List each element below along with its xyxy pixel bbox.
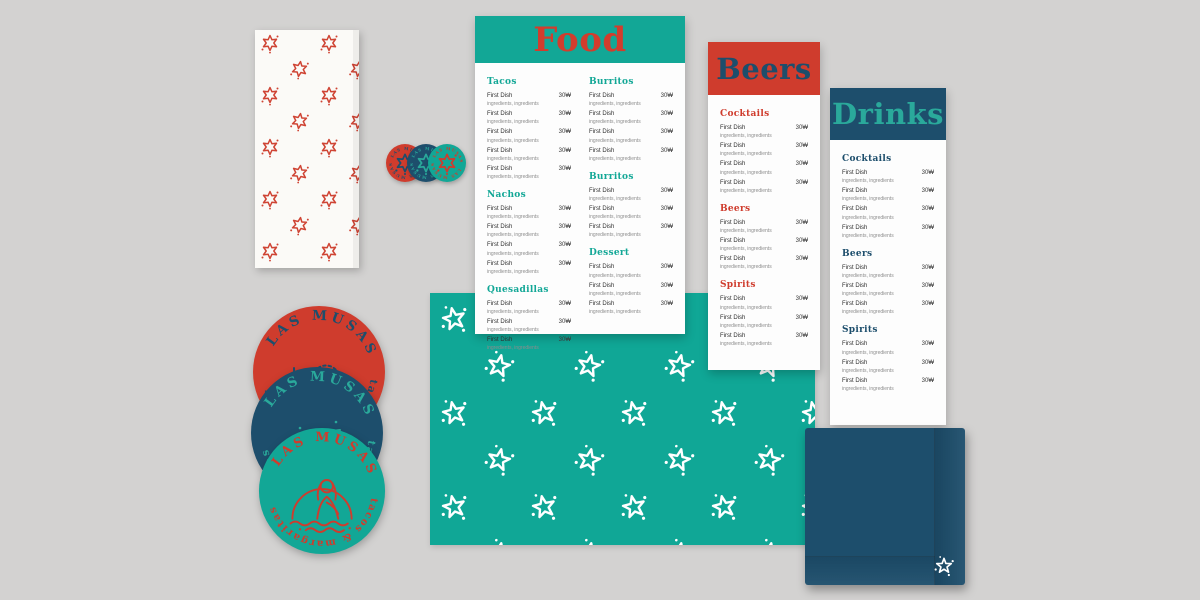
item-price: 30₩ [661, 206, 673, 213]
item-name: First Dish [487, 337, 512, 344]
item-name: First Dish [589, 93, 614, 100]
menu-item: First Dish30₩ingredients, ingredients [842, 170, 934, 184]
item-description: ingredients, ingredients [487, 269, 571, 275]
menu-section: BurritosFirst Dish30₩ingredients, ingred… [589, 77, 673, 162]
food-menu-header: Food [475, 16, 685, 63]
item-name: First Dish [842, 283, 867, 290]
item-description: ingredients, ingredients [487, 309, 571, 315]
menu-item: First Dish30₩ingredients, ingredients [487, 206, 571, 220]
item-price: 30₩ [559, 261, 571, 268]
menu-item: First Dish30₩ingredients, ingredients [487, 111, 571, 125]
item-price: 30₩ [559, 224, 571, 231]
item-description: ingredients, ingredients [720, 151, 808, 157]
mockup-canvas: LAS MUSAS LAS MUSAS LAS MUSAS LAS MUSAS … [0, 0, 1200, 600]
item-description: ingredients, ingredients [589, 214, 673, 220]
item-price: 30₩ [796, 256, 808, 263]
item-name: First Dish [720, 161, 745, 168]
item-description: ingredients, ingredients [487, 232, 571, 238]
item-description: ingredients, ingredients [487, 345, 571, 351]
item-description: ingredients, ingredients [842, 178, 934, 184]
beers-menu-title: Beers [716, 52, 812, 86]
chip-teal: LAS MUSAS LAS MUSAS [428, 144, 466, 182]
napkin [805, 428, 965, 585]
menu-item: First Dish30₩ingredients, ingredients [720, 296, 808, 310]
item-price: 30₩ [796, 296, 808, 303]
item-name: First Dish [720, 238, 745, 245]
menu-item: First Dish30₩ingredients, ingredients [720, 315, 808, 329]
item-price: 30₩ [661, 301, 673, 308]
item-description: ingredients, ingredients [487, 251, 571, 257]
food-menu-title: Food [533, 20, 626, 60]
item-name: First Dish [842, 188, 867, 195]
item-price: 30₩ [559, 111, 571, 118]
item-name: First Dish [720, 315, 745, 322]
menu-item: First Dish30₩ingredients, ingredients [589, 129, 673, 143]
section-heading: Tacos [487, 77, 571, 87]
item-price: 30₩ [559, 242, 571, 249]
item-description: ingredients, ingredients [842, 196, 934, 202]
menu-item: First Dish30₩ingredients, ingredients [487, 148, 571, 162]
food-menu-card: Food TacosFirst Dish30₩ingredients, ingr… [475, 16, 685, 334]
item-price: 30₩ [796, 125, 808, 132]
item-name: First Dish [720, 220, 745, 227]
item-description: ingredients, ingredients [720, 228, 808, 234]
item-name: First Dish [720, 143, 745, 150]
item-description: ingredients, ingredients [487, 156, 571, 162]
item-description: ingredients, ingredients [589, 138, 673, 144]
item-description: ingredients, ingredients [589, 156, 673, 162]
drinks-menu-card: Drinks CocktailsFirst Dish30₩ingredients… [830, 88, 946, 425]
item-price: 30₩ [559, 148, 571, 155]
menu-item: First Dish30₩ingredients, ingredients [589, 188, 673, 202]
item-name: First Dish [720, 125, 745, 132]
item-description: ingredients, ingredients [842, 233, 934, 239]
item-description: ingredients, ingredients [487, 138, 571, 144]
menu-section: SpiritsFirst Dish30₩ingredients, ingredi… [720, 280, 808, 347]
item-price: 30₩ [661, 224, 673, 231]
menu-item: First Dish30₩ingredients, ingredients [720, 143, 808, 157]
menu-section: TacosFirst Dish30₩ingredients, ingredien… [487, 77, 571, 180]
menu-item: First Dish30₩ingredients, ingredients [842, 341, 934, 355]
item-name: First Dish [589, 129, 614, 136]
section-heading: Cocktails [720, 109, 808, 119]
item-price: 30₩ [922, 206, 934, 213]
item-description: ingredients, ingredients [589, 119, 673, 125]
item-name: First Dish [487, 206, 512, 213]
item-description: ingredients, ingredients [589, 232, 673, 238]
item-price: 30₩ [796, 143, 808, 150]
menu-section: CocktailsFirst Dish30₩ingredients, ingre… [720, 109, 808, 194]
item-price: 30₩ [559, 319, 571, 326]
menu-item: First Dish30₩ingredients, ingredients [487, 93, 571, 107]
item-name: First Dish [487, 242, 512, 249]
menu-item: First Dish30₩ingredients, ingredients [487, 224, 571, 238]
item-price: 30₩ [922, 378, 934, 385]
menu-section: DessertFirst Dish30₩ingredients, ingredi… [589, 248, 673, 315]
drinks-menu-header: Drinks [830, 88, 946, 140]
item-name: First Dish [589, 111, 614, 118]
item-name: First Dish [720, 333, 745, 340]
item-description: ingredients, ingredients [720, 341, 808, 347]
item-description: ingredients, ingredients [487, 174, 571, 180]
item-name: First Dish [842, 341, 867, 348]
menu-item: First Dish30₩ingredients, ingredients [720, 238, 808, 252]
section-heading: Burritos [589, 77, 673, 87]
menu-item: First Dish30₩ingredients, ingredients [842, 188, 934, 202]
menu-item: First Dish30₩ingredients, ingredients [720, 220, 808, 234]
item-name: First Dish [487, 224, 512, 231]
item-price: 30₩ [796, 315, 808, 322]
coaster-teal: LAS MUSAS tacos & margaritas [258, 427, 386, 555]
item-name: First Dish [589, 264, 614, 271]
item-name: First Dish [487, 111, 512, 118]
item-description: ingredients, ingredients [720, 305, 808, 311]
menu-item: First Dish30₩ingredients, ingredients [842, 378, 934, 392]
menu-item: First Dish30₩ingredients, ingredients [589, 111, 673, 125]
section-heading: Beers [842, 249, 934, 259]
item-price: 30₩ [661, 264, 673, 271]
menu-item: First Dish30₩ingredients, ingredients [589, 283, 673, 297]
item-name: First Dish [487, 129, 512, 136]
item-name: First Dish [842, 225, 867, 232]
food-menu-column-left: TacosFirst Dish30₩ingredients, ingredien… [487, 77, 571, 361]
beers-menu-header: Beers [708, 42, 820, 95]
beers-menu-card: Beers CocktailsFirst Dish30₩ingredients,… [708, 42, 820, 370]
item-price: 30₩ [922, 188, 934, 195]
menu-item: First Dish30₩ingredients, ingredients [589, 301, 673, 315]
section-heading: Quesadillas [487, 285, 571, 295]
menu-item: First Dish30₩ingredients, ingredients [589, 206, 673, 220]
menu-section: BeersFirst Dish30₩ingredients, ingredien… [842, 249, 934, 316]
item-description: ingredients, ingredients [842, 273, 934, 279]
menu-item: First Dish30₩ingredients, ingredients [842, 301, 934, 315]
menu-item: First Dish30₩ingredients, ingredients [589, 93, 673, 107]
menu-item: First Dish30₩ingredients, ingredients [487, 337, 571, 351]
item-description: ingredients, ingredients [842, 368, 934, 374]
section-heading: Beers [720, 204, 808, 214]
star-icon [931, 553, 957, 579]
item-price: 30₩ [559, 206, 571, 213]
drinks-menu-body: CocktailsFirst Dish30₩ingredients, ingre… [830, 140, 946, 412]
item-name: First Dish [487, 93, 512, 100]
item-price: 30₩ [796, 238, 808, 245]
item-description: ingredients, ingredients [842, 291, 934, 297]
item-description: ingredients, ingredients [842, 386, 934, 392]
menu-item: First Dish30₩ingredients, ingredients [589, 264, 673, 278]
item-description: ingredients, ingredients [842, 350, 934, 356]
item-price: 30₩ [661, 148, 673, 155]
menu-item: First Dish30₩ingredients, ingredients [842, 225, 934, 239]
section-heading: Nachos [487, 190, 571, 200]
item-description: ingredients, ingredients [589, 291, 673, 297]
menu-item: First Dish30₩ingredients, ingredients [487, 319, 571, 333]
item-description: ingredients, ingredients [720, 170, 808, 176]
menu-item: First Dish30₩ingredients, ingredients [720, 256, 808, 270]
item-price: 30₩ [559, 93, 571, 100]
item-name: First Dish [842, 378, 867, 385]
menu-item: First Dish30₩ingredients, ingredients [589, 224, 673, 238]
menu-section: SpiritsFirst Dish30₩ingredients, ingredi… [842, 325, 934, 392]
item-name: First Dish [589, 206, 614, 213]
menu-item: First Dish30₩ingredients, ingredients [487, 242, 571, 256]
item-price: 30₩ [661, 129, 673, 136]
item-name: First Dish [487, 261, 512, 268]
item-description: ingredients, ingredients [487, 119, 571, 125]
menu-item: First Dish30₩ingredients, ingredients [842, 265, 934, 279]
item-description: ingredients, ingredients [720, 246, 808, 252]
item-price: 30₩ [661, 188, 673, 195]
drinks-menu-title: Drinks [832, 97, 944, 131]
menu-section: BurritosFirst Dish30₩ingredients, ingred… [589, 172, 673, 239]
menu-item: First Dish30₩ingredients, ingredients [720, 333, 808, 347]
item-name: First Dish [720, 256, 745, 263]
item-price: 30₩ [661, 93, 673, 100]
item-price: 30₩ [559, 337, 571, 344]
menu-item: First Dish30₩ingredients, ingredients [487, 261, 571, 275]
item-description: ingredients, ingredients [589, 309, 673, 315]
menu-section: BeersFirst Dish30₩ingredients, ingredien… [720, 204, 808, 271]
item-description: ingredients, ingredients [487, 101, 571, 107]
section-heading: Spirits [842, 325, 934, 335]
food-menu-column-right: BurritosFirst Dish30₩ingredients, ingred… [589, 77, 673, 361]
item-name: First Dish [589, 224, 614, 231]
item-description: ingredients, ingredients [720, 188, 808, 194]
item-price: 30₩ [922, 170, 934, 177]
menu-item: First Dish30₩ingredients, ingredients [842, 206, 934, 220]
menu-section: NachosFirst Dish30₩ingredients, ingredie… [487, 190, 571, 275]
item-name: First Dish [487, 301, 512, 308]
item-description: ingredients, ingredients [720, 264, 808, 270]
item-name: First Dish [720, 180, 745, 187]
item-price: 30₩ [922, 283, 934, 290]
item-name: First Dish [487, 319, 512, 326]
item-price: 30₩ [661, 283, 673, 290]
item-name: First Dish [842, 360, 867, 367]
item-price: 30₩ [922, 225, 934, 232]
tissue-paper [255, 30, 359, 268]
item-price: 30₩ [661, 111, 673, 118]
item-description: ingredients, ingredients [842, 215, 934, 221]
section-heading: Cocktails [842, 154, 934, 164]
item-description: ingredients, ingredients [589, 101, 673, 107]
item-name: First Dish [842, 206, 867, 213]
item-name: First Dish [487, 148, 512, 155]
menu-item: First Dish30₩ingredients, ingredients [720, 161, 808, 175]
item-name: First Dish [589, 188, 614, 195]
section-heading: Spirits [720, 280, 808, 290]
food-menu-body: TacosFirst Dish30₩ingredients, ingredien… [475, 63, 685, 371]
item-price: 30₩ [922, 301, 934, 308]
item-name: First Dish [589, 301, 614, 308]
menu-item: First Dish30₩ingredients, ingredients [487, 129, 571, 143]
item-name: First Dish [842, 265, 867, 272]
item-price: 30₩ [796, 180, 808, 187]
menu-section: CocktailsFirst Dish30₩ingredients, ingre… [842, 154, 934, 239]
item-price: 30₩ [922, 341, 934, 348]
menu-item: First Dish30₩ingredients, ingredients [842, 360, 934, 374]
menu-item: First Dish30₩ingredients, ingredients [589, 148, 673, 162]
item-name: First Dish [842, 170, 867, 177]
item-description: ingredients, ingredients [589, 273, 673, 279]
beers-menu-body: CocktailsFirst Dish30₩ingredients, ingre… [708, 95, 820, 367]
item-name: First Dish [589, 283, 614, 290]
menu-item: First Dish30₩ingredients, ingredients [487, 301, 571, 315]
menu-section: QuesadillasFirst Dish30₩ingredients, ing… [487, 285, 571, 352]
item-price: 30₩ [796, 161, 808, 168]
item-description: ingredients, ingredients [720, 323, 808, 329]
tissue-star-pattern [255, 30, 359, 268]
item-name: First Dish [589, 148, 614, 155]
item-price: 30₩ [796, 220, 808, 227]
item-price: 30₩ [559, 129, 571, 136]
item-price: 30₩ [559, 166, 571, 173]
menu-item: First Dish30₩ingredients, ingredients [842, 283, 934, 297]
section-heading: Dessert [589, 248, 673, 258]
item-description: ingredients, ingredients [589, 196, 673, 202]
item-name: First Dish [720, 296, 745, 303]
item-price: 30₩ [559, 301, 571, 308]
napkin-fold-bottom [805, 556, 935, 585]
item-price: 30₩ [922, 360, 934, 367]
menu-item: First Dish30₩ingredients, ingredients [720, 180, 808, 194]
item-description: ingredients, ingredients [487, 214, 571, 220]
item-price: 30₩ [796, 333, 808, 340]
item-description: ingredients, ingredients [720, 133, 808, 139]
menu-item: First Dish30₩ingredients, ingredients [487, 166, 571, 180]
tissue-fold-edge [353, 30, 359, 268]
item-price: 30₩ [922, 265, 934, 272]
item-description: ingredients, ingredients [842, 309, 934, 315]
menu-item: First Dish30₩ingredients, ingredients [720, 125, 808, 139]
item-description: ingredients, ingredients [487, 327, 571, 333]
item-name: First Dish [487, 166, 512, 173]
section-heading: Burritos [589, 172, 673, 182]
item-name: First Dish [842, 301, 867, 308]
